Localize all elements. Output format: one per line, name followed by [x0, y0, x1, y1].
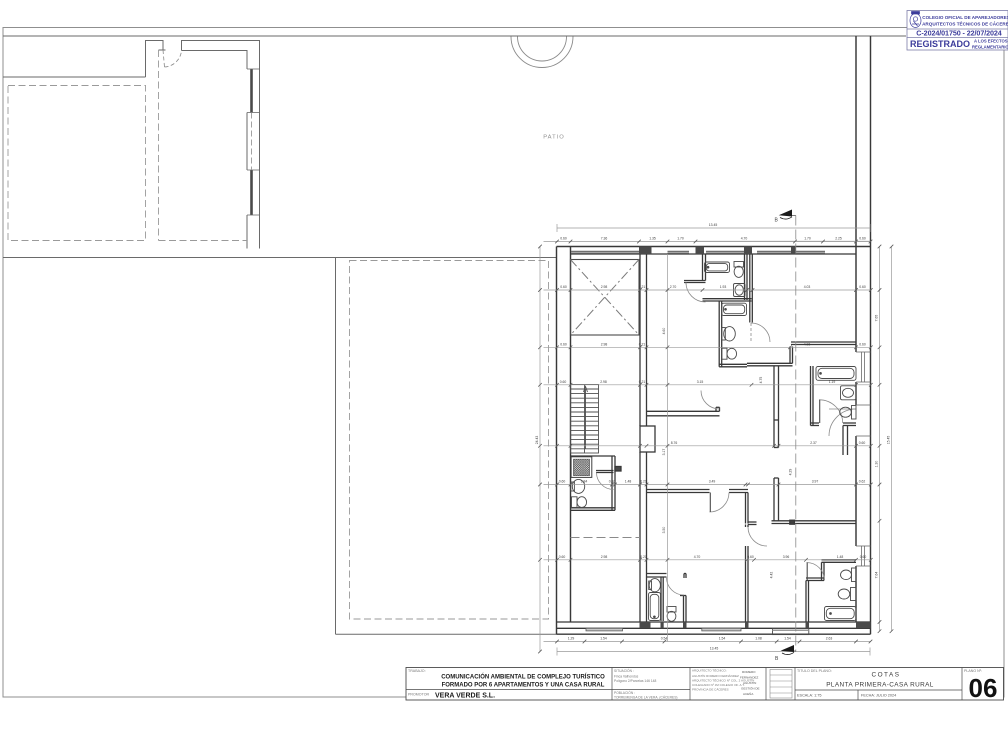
- svg-text:0.60: 0.60: [860, 555, 867, 559]
- svg-text:0.21: 0.21: [640, 480, 647, 484]
- svg-text:REGLAMENTARIOS: REGLAMENTARIOS: [972, 44, 1008, 49]
- svg-text:ARQUITECTOS TÉCNICOS DE CÁCERE: ARQUITECTOS TÉCNICOS DE CÁCERES: [922, 20, 1008, 27]
- svg-text:AGUSTÍN ROMERO FERNÁNDEZ: AGUSTÍN ROMERO FERNÁNDEZ: [692, 674, 739, 678]
- svg-text:ACEÑA: ACEÑA: [743, 691, 753, 696]
- svg-text:3.96: 3.96: [783, 555, 790, 559]
- svg-text:FERNANDEZ: FERNANDEZ: [740, 676, 759, 680]
- svg-text:COLEGIO OFICIAL DE APAREJADORE: COLEGIO OFICIAL DE APAREJADORES: [922, 15, 1008, 20]
- svg-text:1.54: 1.54: [719, 637, 726, 641]
- svg-text:4.75: 4.75: [759, 377, 763, 384]
- svg-text:2.63: 2.63: [826, 637, 833, 641]
- svg-text:TITULO DEL PLANO:: TITULO DEL PLANO:: [797, 669, 832, 673]
- svg-text:0.60: 0.60: [859, 285, 866, 289]
- svg-text:1.08: 1.08: [755, 637, 762, 641]
- svg-text:8.76: 8.76: [671, 441, 678, 445]
- svg-text:4.29: 4.29: [788, 469, 792, 476]
- svg-text:3.49: 3.49: [709, 480, 716, 484]
- svg-text:0.54: 0.54: [661, 637, 668, 641]
- svg-text:0.21: 0.21: [639, 285, 646, 289]
- svg-text:1.35: 1.35: [649, 237, 656, 241]
- svg-text:AGUSTIN: AGUSTIN: [743, 681, 756, 685]
- svg-text:B: B: [775, 656, 779, 662]
- svg-text:PATIO: PATIO: [543, 135, 565, 141]
- svg-text:C-2024/01750 - 22/07/2024: C-2024/01750 - 22/07/2024: [916, 29, 1002, 38]
- svg-text:2.98: 2.98: [600, 380, 607, 384]
- svg-text:0.10: 0.10: [609, 480, 616, 484]
- svg-text:COLEGIADO Nº JM COLEGIO OF. A.: COLEGIADO Nº JM COLEGIO OF. A.T.: [692, 683, 745, 687]
- svg-text:0.60: 0.60: [559, 480, 566, 484]
- svg-text:PLANTA PRIMERA-CASA RURAL: PLANTA PRIMERA-CASA RURAL: [826, 682, 934, 689]
- svg-text:B: B: [775, 218, 779, 224]
- svg-text:FECHA: JULIO 2024: FECHA: JULIO 2024: [861, 694, 896, 698]
- svg-text:0.62: 0.62: [859, 480, 866, 484]
- svg-text:0.21: 0.21: [639, 380, 646, 384]
- svg-text:1.19: 1.19: [829, 380, 836, 384]
- svg-text:PROVINCIA DE CÁCERES: PROVINCIA DE CÁCERES: [692, 688, 729, 692]
- svg-text:1.93: 1.93: [720, 285, 727, 289]
- svg-text:1.54: 1.54: [784, 637, 791, 641]
- svg-text:ROMERO: ROMERO: [742, 670, 756, 674]
- svg-text:0.60: 0.60: [560, 237, 567, 241]
- svg-text:0.21: 0.21: [640, 555, 647, 559]
- svg-text:7.65: 7.65: [875, 315, 879, 322]
- svg-text:3.17: 3.17: [662, 449, 666, 456]
- svg-text:0.21: 0.21: [639, 342, 646, 346]
- svg-text:1.70: 1.70: [677, 237, 684, 241]
- svg-text:A LOS EFECTOS: A LOS EFECTOS: [974, 39, 1008, 44]
- svg-text:4.60: 4.60: [662, 328, 666, 335]
- svg-text:Finca Valhondos: Finca Valhondos: [614, 675, 639, 679]
- svg-text:7.64: 7.64: [875, 572, 879, 579]
- svg-text:3.97: 3.97: [812, 480, 819, 484]
- svg-text:0.60: 0.60: [747, 555, 754, 559]
- svg-text:4.03: 4.03: [804, 342, 811, 346]
- svg-text:3.50: 3.50: [662, 527, 666, 534]
- svg-text:COTAS: COTAS: [871, 672, 900, 679]
- svg-text:1.84: 1.84: [581, 480, 588, 484]
- svg-text:15.45: 15.45: [887, 436, 891, 445]
- svg-text:SITUACIÓN :: SITUACIÓN :: [614, 668, 634, 673]
- svg-text:2.98: 2.98: [601, 555, 608, 559]
- svg-text:VERA VERDE S.L.: VERA VERDE S.L.: [435, 693, 495, 700]
- svg-text:0.60: 0.60: [859, 237, 866, 241]
- svg-text:4.70: 4.70: [741, 237, 748, 241]
- svg-text:2.25: 2.25: [835, 237, 842, 241]
- svg-text:GESTIÓN DE: GESTIÓN DE: [741, 686, 760, 691]
- svg-text:2.98: 2.98: [601, 342, 608, 346]
- svg-text:4.42: 4.42: [770, 572, 774, 579]
- svg-text:1.48: 1.48: [837, 555, 844, 559]
- svg-text:13.45: 13.45: [709, 223, 718, 227]
- svg-text:0.60: 0.60: [859, 441, 866, 445]
- svg-text:7.36: 7.36: [601, 237, 608, 241]
- svg-text:REGISTRADO: REGISTRADO: [910, 39, 970, 49]
- svg-text:2.98: 2.98: [601, 285, 608, 289]
- svg-text:FORMADO POR 6 APARTAMENTOS Y U: FORMADO POR 6 APARTAMENTOS Y UNA CASA RU…: [442, 682, 605, 688]
- svg-text:24.43: 24.43: [535, 436, 539, 445]
- svg-text:1.29: 1.29: [568, 637, 575, 641]
- svg-text:0.60: 0.60: [560, 285, 567, 289]
- svg-text:3.15: 3.15: [697, 380, 704, 384]
- svg-text:TORREMENGA DE LA VERA. (CÁCERE: TORREMENGA DE LA VERA. (CÁCERES): [614, 696, 678, 700]
- svg-text:PROMOTOR: PROMOTOR: [408, 693, 430, 697]
- svg-text:0.60: 0.60: [859, 342, 866, 346]
- svg-text:1.48: 1.48: [625, 480, 632, 484]
- svg-text:1.30: 1.30: [875, 461, 879, 468]
- svg-text:1.54: 1.54: [600, 637, 607, 641]
- svg-text:ESCALA: 1:75: ESCALA: 1:75: [797, 694, 821, 698]
- svg-text:COMUNICACIÓN AMBIENTAL DE COMP: COMUNICACIÓN AMBIENTAL DE COMPLEJO TURÍS…: [441, 672, 605, 680]
- svg-text:Polígono 2/Parcelas 146 148: Polígono 2/Parcelas 146 148: [614, 679, 657, 683]
- svg-text:0.60: 0.60: [560, 380, 567, 384]
- svg-text:0.60: 0.60: [559, 555, 566, 559]
- svg-text:1.70: 1.70: [804, 237, 811, 241]
- svg-text:2.37: 2.37: [810, 441, 817, 445]
- svg-text:POBLACIÓN :: POBLACIÓN :: [614, 690, 635, 695]
- svg-text:13.45: 13.45: [710, 647, 719, 651]
- svg-text:06: 06: [969, 673, 998, 703]
- svg-text:4.70: 4.70: [694, 555, 701, 559]
- svg-text:0.60: 0.60: [560, 342, 567, 346]
- svg-text:ARQUITECTO TÉCNICO:: ARQUITECTO TÉCNICO:: [692, 668, 727, 673]
- svg-text:TRABAJO:: TRABAJO:: [408, 669, 426, 673]
- svg-text:4.03: 4.03: [804, 285, 811, 289]
- svg-text:2.70: 2.70: [670, 285, 677, 289]
